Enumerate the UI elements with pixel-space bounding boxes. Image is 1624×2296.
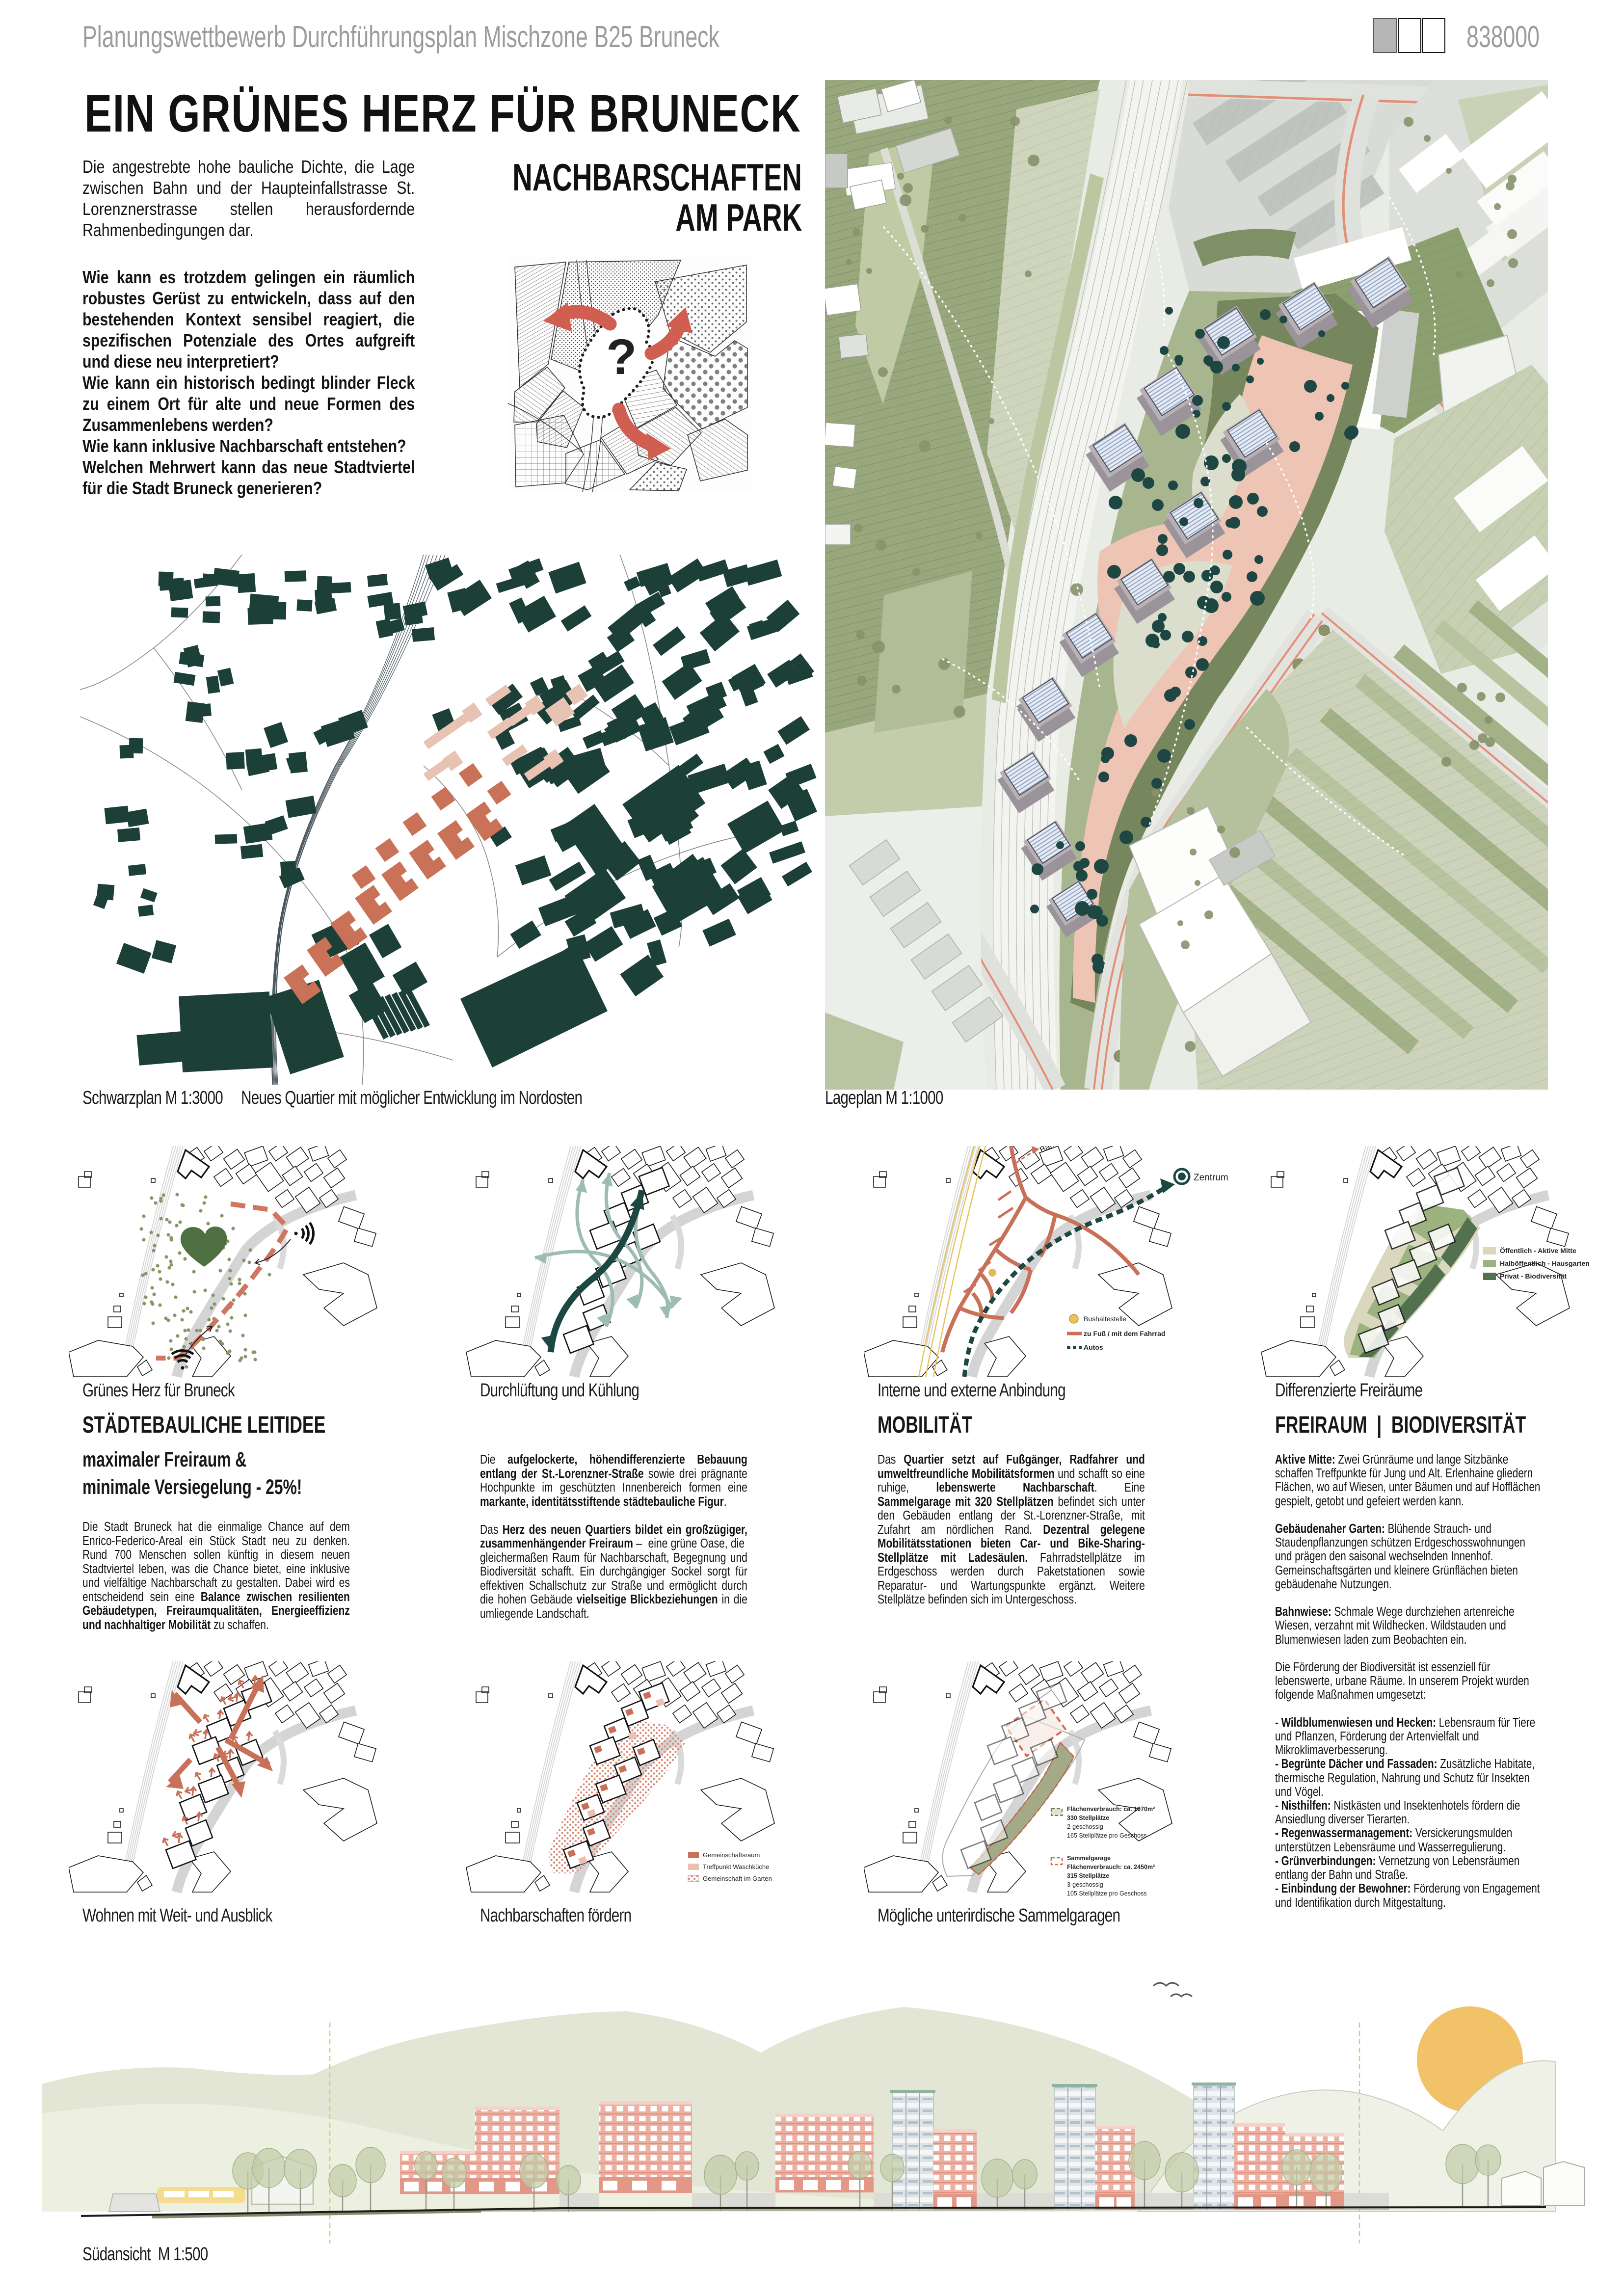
svg-text:Gemeinschaft im Garten: Gemeinschaft im Garten: [703, 1875, 772, 1882]
svg-text:165 Stellplätze pro Geschoss: 165 Stellplätze pro Geschoss: [1067, 1832, 1147, 1839]
svg-text:Zentrum: Zentrum: [1194, 1173, 1228, 1183]
svg-text:Treffpunkt Waschküche: Treffpunkt Waschküche: [703, 1863, 769, 1870]
svg-text:Bushaltestelle: Bushaltestelle: [1084, 1315, 1126, 1323]
svg-text:Gemeinschaftsraum: Gemeinschaftsraum: [703, 1851, 760, 1859]
svg-text:Öffentlich - Aktive Mitte: Öffentlich - Aktive Mitte: [1500, 1247, 1576, 1255]
svg-text:zu Fuß / mit dem Fahrrad: zu Fuß / mit dem Fahrrad: [1084, 1330, 1165, 1337]
svg-text:Flächenverbrauch: ca. 1970m²: Flächenverbrauch: ca. 1970m²: [1067, 1806, 1155, 1813]
svg-text:330 Stellplätze: 330 Stellplätze: [1067, 1815, 1109, 1821]
svg-text:?: ?: [606, 329, 637, 385]
svg-text:105 Stellplätze pro Geschoss: 105 Stellplätze pro Geschoss: [1067, 1890, 1147, 1897]
svg-text:3-geschossig: 3-geschossig: [1067, 1881, 1103, 1888]
svg-text:Flächenverbrauch: ca. 2450m²: Flächenverbrauch: ca. 2450m²: [1067, 1864, 1155, 1870]
svg-text:315 Stellplätze: 315 Stellplätze: [1067, 1872, 1109, 1879]
svg-text:2-geschossig: 2-geschossig: [1067, 1823, 1103, 1830]
svg-text:Privat - Biodiversität: Privat - Biodiversität: [1500, 1272, 1567, 1280]
svg-text:Autos: Autos: [1084, 1343, 1103, 1351]
svg-text:Halböffentlich - Hausgarten: Halböffentlich - Hausgarten: [1500, 1259, 1590, 1267]
svg-text:Sammelgarage: Sammelgarage: [1067, 1855, 1111, 1862]
